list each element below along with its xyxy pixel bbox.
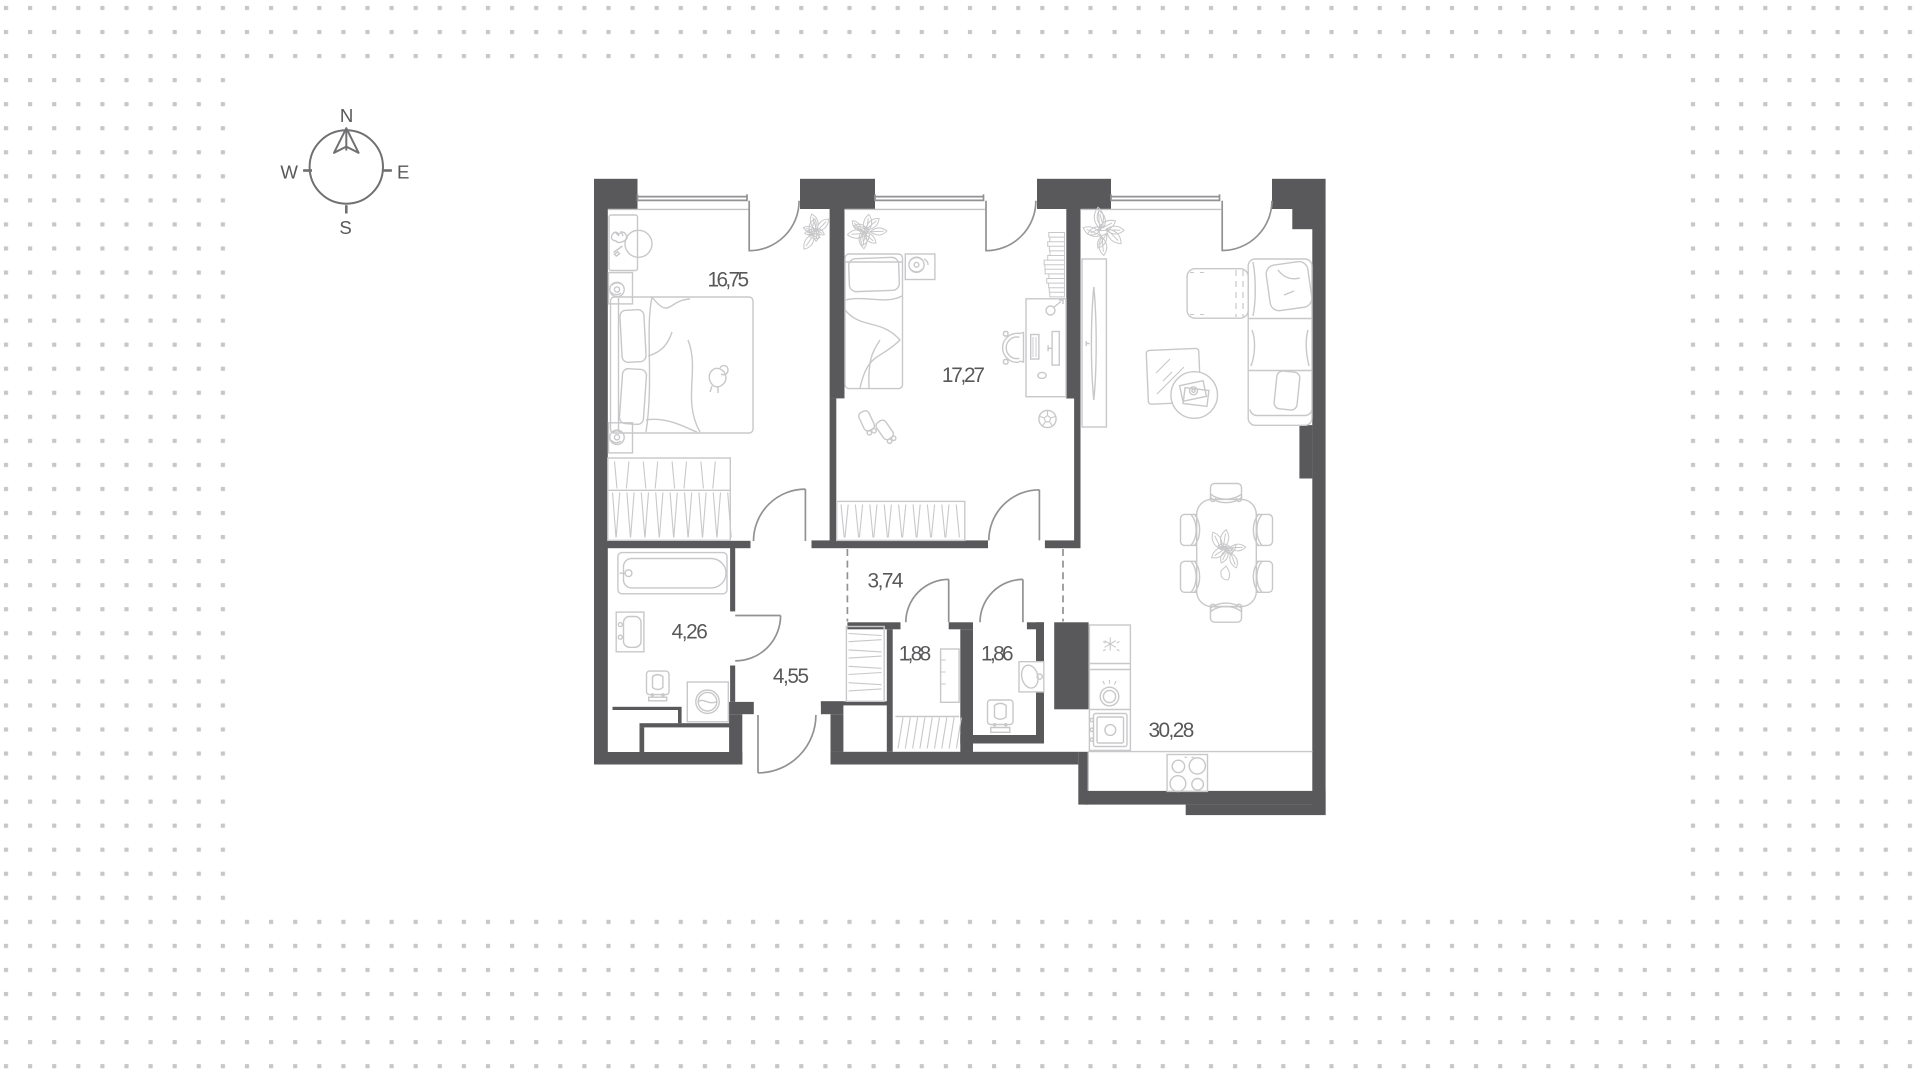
svg-text:1,86: 1,86	[981, 642, 1014, 665]
svg-text:4,26: 4,26	[672, 620, 708, 643]
svg-text:N: N	[340, 105, 353, 126]
svg-text:E: E	[397, 161, 409, 182]
svg-text:17,27: 17,27	[942, 364, 985, 387]
svg-text:30,28: 30,28	[1149, 719, 1195, 742]
svg-text:4,55: 4,55	[773, 665, 809, 688]
svg-text:3,74: 3,74	[868, 569, 904, 592]
svg-text:S: S	[339, 217, 351, 238]
svg-text:1,88: 1,88	[899, 642, 932, 665]
svg-text:16,75: 16,75	[708, 269, 750, 292]
svg-text:W: W	[280, 161, 298, 182]
